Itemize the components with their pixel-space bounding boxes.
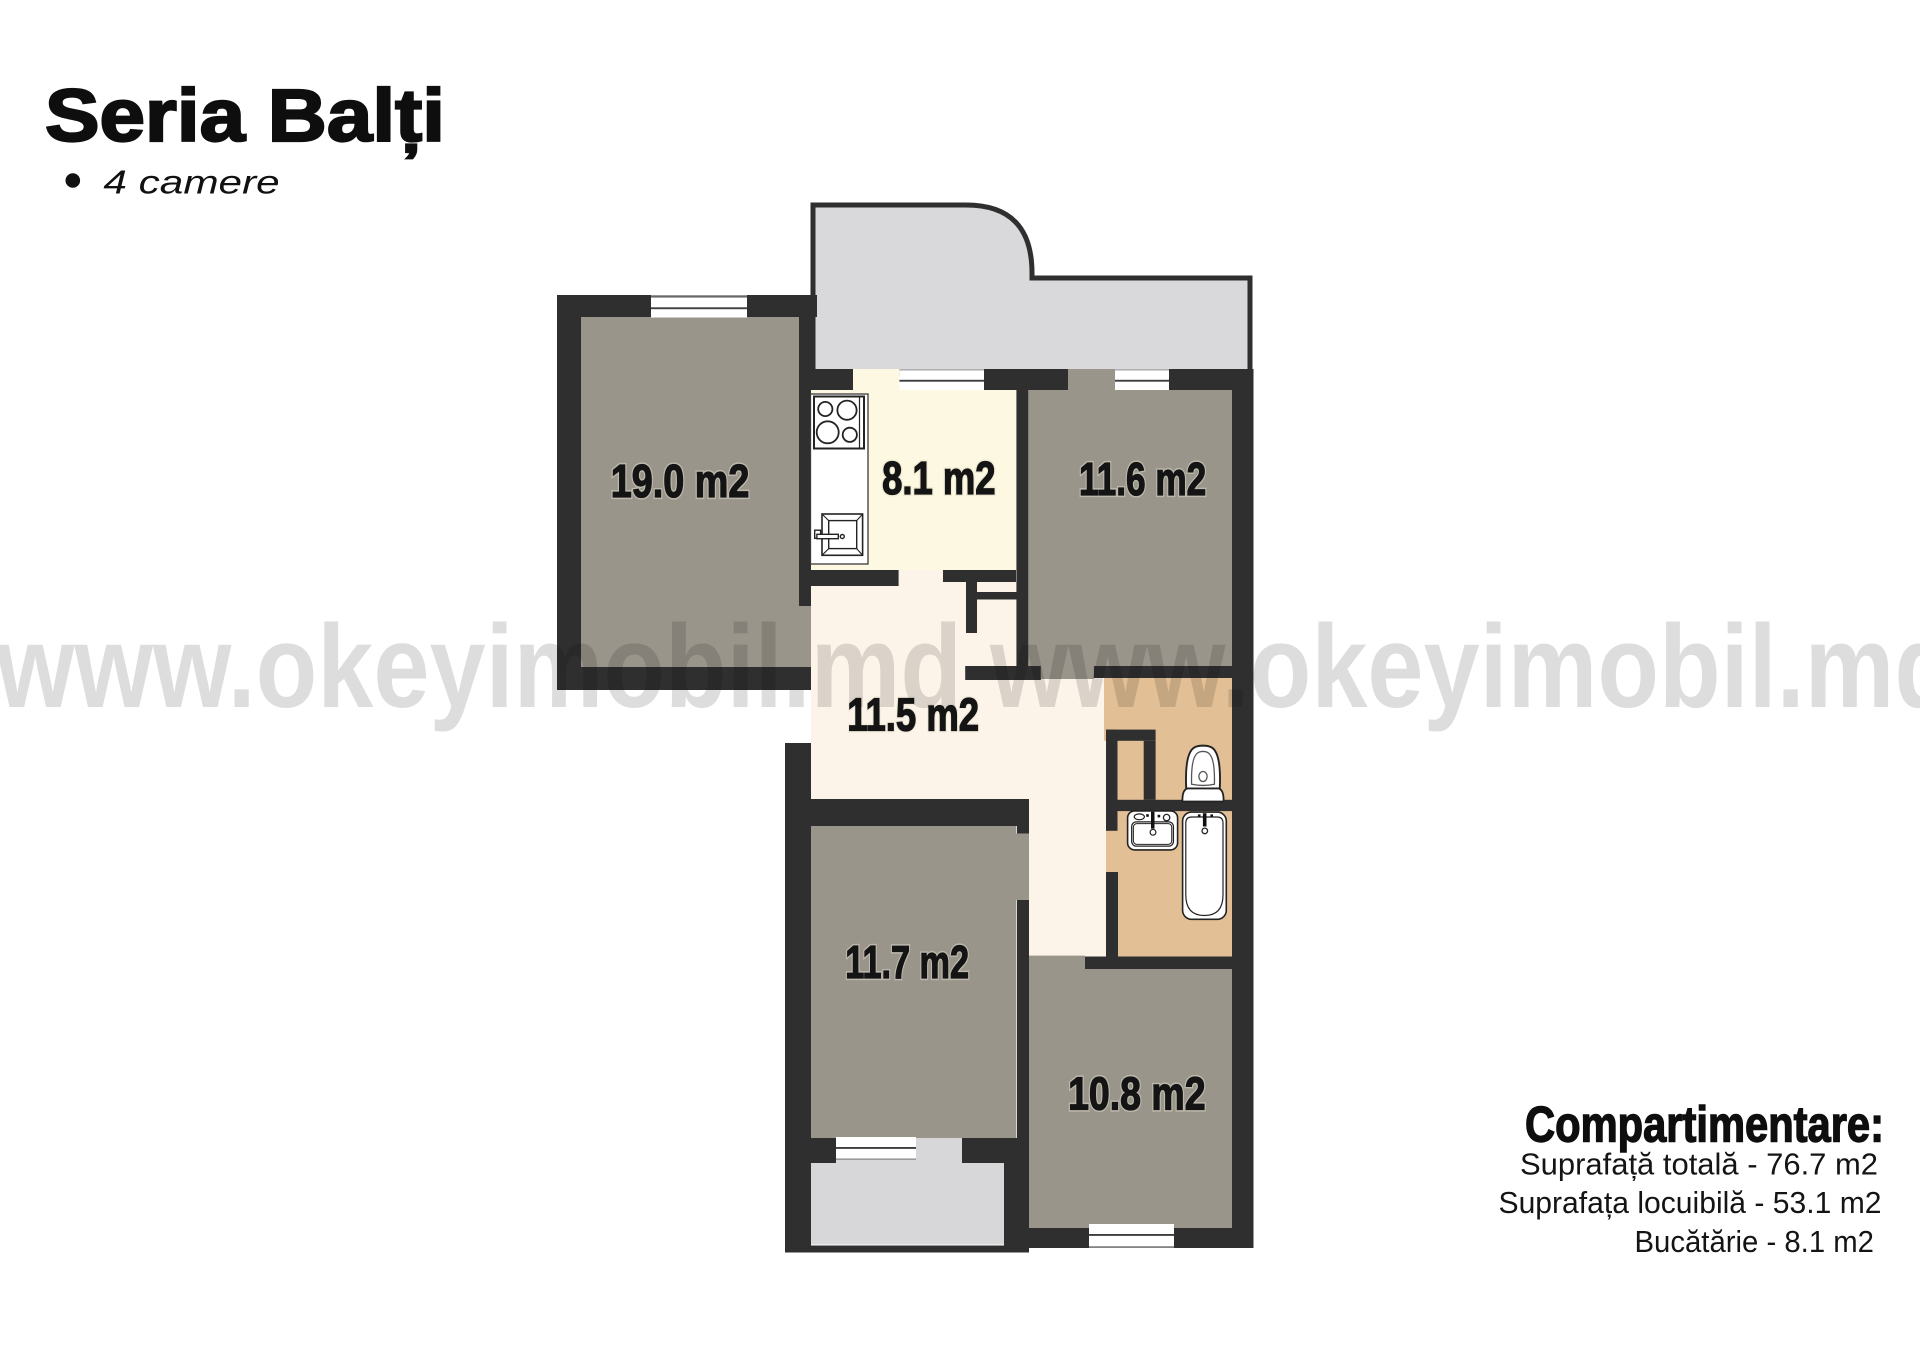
- svg-text:Compartimentare:: Compartimentare:: [1525, 1097, 1884, 1153]
- svg-text:4 camere: 4 camere: [103, 163, 279, 200]
- svg-text:11.7 m2: 11.7 m2: [845, 936, 969, 988]
- svg-text:10.8 m2: 10.8 m2: [1068, 1068, 1206, 1120]
- svg-text:www.okeyimobil.md www.okeyimob: www.okeyimobil.md www.okeyimobil.md: [0, 601, 1920, 733]
- svg-text:11.6 m2: 11.6 m2: [1079, 453, 1206, 505]
- svg-text:Seria Balți: Seria Balți: [45, 74, 445, 158]
- svg-text:19.0 m2: 19.0 m2: [611, 455, 750, 507]
- svg-text:Bucătărie - 8.1 m2: Bucătărie - 8.1 m2: [1635, 1224, 1875, 1259]
- svg-text:8.1 m2: 8.1 m2: [882, 452, 995, 504]
- svg-text:Suprafața locuibilă - 53.1 m2: Suprafața locuibilă - 53.1 m2: [1499, 1185, 1882, 1220]
- svg-text:Suprafață totală - 76.7 m2: Suprafață totală - 76.7 m2: [1520, 1146, 1878, 1181]
